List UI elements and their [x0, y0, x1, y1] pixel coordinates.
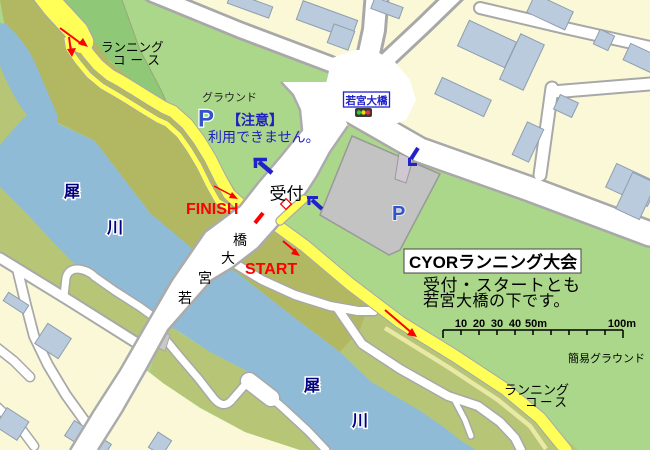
- svg-text:コース: コース: [113, 54, 165, 68]
- svg-text:宮: 宮: [198, 270, 212, 286]
- svg-text:橋: 橋: [233, 232, 247, 248]
- svg-text:30: 30: [491, 318, 503, 330]
- svg-text:犀: 犀: [303, 377, 320, 395]
- svg-text:40: 40: [509, 318, 521, 330]
- svg-text:簡易グラウンド: 簡易グラウンド: [568, 351, 645, 365]
- svg-text:CYORランニング大会: CYORランニング大会: [409, 252, 577, 272]
- svg-text:ランニング: ランニング: [101, 41, 164, 55]
- svg-text:FINISH: FINISH: [186, 201, 238, 218]
- svg-text:川: 川: [351, 413, 368, 430]
- svg-text:グラウンド: グラウンド: [202, 90, 257, 104]
- svg-text:利用できません。: 利用できません。: [208, 129, 320, 145]
- svg-text:大: 大: [221, 250, 235, 266]
- svg-text:川: 川: [106, 220, 123, 237]
- svg-text:コース: コース: [525, 396, 569, 410]
- svg-text:20: 20: [473, 318, 485, 330]
- svg-text:若: 若: [178, 290, 192, 306]
- svg-text:100m: 100m: [608, 318, 636, 330]
- svg-text:【注意】: 【注意】: [227, 112, 283, 128]
- svg-text:START: START: [245, 261, 297, 278]
- svg-text:50m: 50m: [525, 318, 547, 330]
- svg-text:犀: 犀: [63, 183, 80, 201]
- svg-text:10: 10: [455, 318, 467, 330]
- svg-text:若宮大橋: 若宮大橋: [345, 94, 388, 107]
- svg-text:P: P: [392, 203, 405, 225]
- svg-text:受付: 受付: [270, 185, 304, 204]
- svg-text:若宮大橋の下です。: 若宮大橋の下です。: [423, 292, 570, 310]
